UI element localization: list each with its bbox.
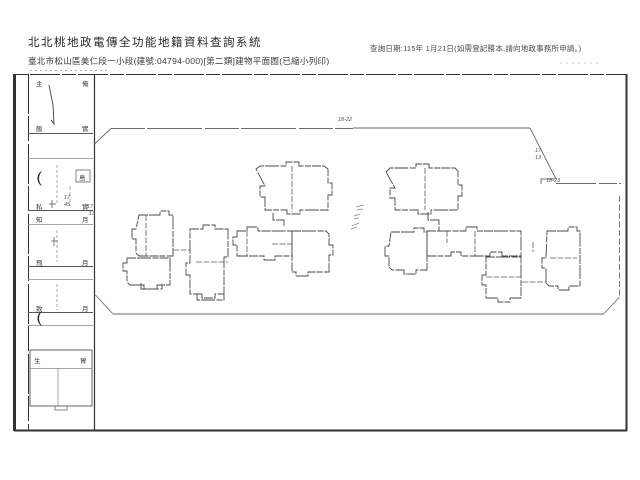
parcel-label-diag-upper: 17 bbox=[535, 148, 542, 154]
crescent-mark-1 bbox=[38, 171, 43, 186]
strip-mark: 私 bbox=[36, 202, 43, 211]
parcel-label-top: 18-22 bbox=[338, 117, 352, 123]
parcel-label-diag-lower: 13 bbox=[535, 155, 542, 161]
building-cluster-right bbox=[385, 164, 580, 302]
strip-mark: 月 bbox=[82, 305, 89, 313]
parcel-label-left-lower: 13 bbox=[89, 211, 96, 217]
strip-mark: 致 bbox=[36, 304, 43, 313]
outer-frame bbox=[14, 63, 627, 431]
strip-mark: 知 bbox=[36, 215, 43, 224]
strip-mark: 俺 bbox=[82, 79, 89, 88]
center-scribble-marks bbox=[351, 205, 364, 229]
strip-stroke bbox=[49, 85, 54, 124]
strip-mark: 生 bbox=[34, 356, 41, 365]
parcel-label-left-upper: 17 bbox=[87, 204, 94, 210]
left-info-strip: 主 俺 飯 實 島 17 45 私 實 知 月 飛 月 致 月 生 胃 bbox=[28, 79, 93, 410]
building-cluster-left bbox=[123, 162, 333, 300]
strip-mark: 胃 bbox=[80, 357, 87, 365]
scanned-floor-plan: 主 俺 飯 實 島 17 45 私 實 知 月 飛 月 致 月 生 胃 bbox=[0, 0, 640, 480]
strip-mark: 月 bbox=[82, 259, 89, 267]
parcel-boundary: 18-22 17 13 18-23 17 13 bbox=[87, 117, 621, 314]
strip-mark: 飛 bbox=[36, 259, 43, 267]
strip-handwriting: 17 bbox=[64, 195, 71, 201]
document-page: 北北桃地政電傳全功能地籍資料查詢系統 臺北市松山區美仁段一小段(建號:04794… bbox=[0, 0, 640, 480]
crescent-mark-2 bbox=[38, 311, 43, 326]
strip-handwriting: 45 bbox=[64, 202, 71, 208]
strip-mark: 飯 bbox=[36, 124, 43, 133]
strip-mark: 主 bbox=[36, 79, 43, 88]
parcel-label-corner: 18-23 bbox=[546, 178, 561, 184]
strip-mark: 實 bbox=[82, 124, 89, 133]
strip-mark: 島 bbox=[79, 173, 86, 182]
strip-mark: 月 bbox=[82, 216, 89, 224]
